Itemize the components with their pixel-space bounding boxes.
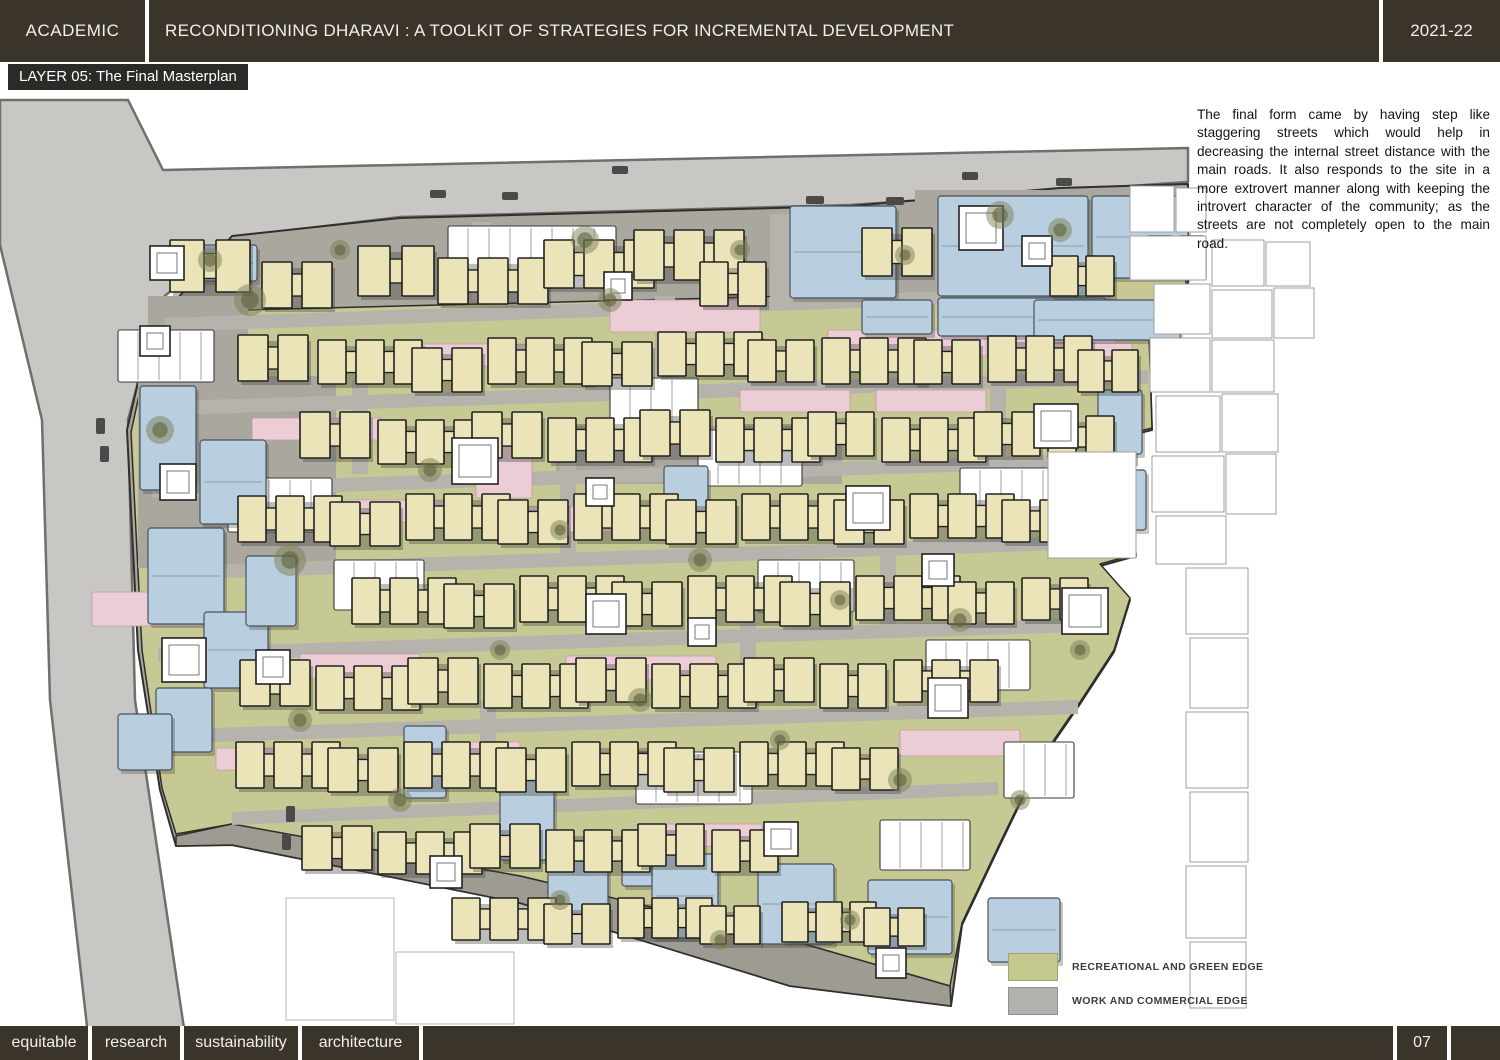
- page-number: 07: [1397, 1026, 1447, 1060]
- description-paragraph: The final form came by having step like …: [1197, 106, 1490, 253]
- header-bar: ACADEMIC RECONDITIONING DHARAVI : A TOOL…: [0, 0, 1500, 62]
- layer-label: LAYER 05: The Final Masterplan: [8, 64, 248, 90]
- footer-spacer: [423, 1026, 1393, 1060]
- legend-swatch-green: [1008, 953, 1058, 981]
- legend-swatch-gray: [1008, 987, 1058, 1015]
- map-legend: RECREATIONAL AND GREEN EDGE WORK AND COM…: [1008, 953, 1263, 1021]
- footer-tag-architecture: architecture: [302, 1026, 419, 1060]
- header-category: ACADEMIC: [0, 0, 145, 62]
- legend-item-green: RECREATIONAL AND GREEN EDGE: [1008, 953, 1263, 980]
- footer-tag-research: research: [92, 1026, 180, 1060]
- footer-bar: equitable research sustainability archit…: [0, 1026, 1500, 1060]
- header-year: 2021-22: [1383, 0, 1500, 62]
- footer-tag-sustainability: sustainability: [184, 1026, 298, 1060]
- legend-item-gray: WORK AND COMMERCIAL EDGE: [1008, 987, 1263, 1014]
- footer-end-segment: [1451, 1026, 1500, 1060]
- legend-label: RECREATIONAL AND GREEN EDGE: [1072, 961, 1263, 973]
- footer-tag-equitable: equitable: [0, 1026, 88, 1060]
- legend-label: WORK AND COMMERCIAL EDGE: [1072, 995, 1248, 1007]
- page-title: RECONDITIONING DHARAVI : A TOOLKIT OF ST…: [149, 0, 1379, 62]
